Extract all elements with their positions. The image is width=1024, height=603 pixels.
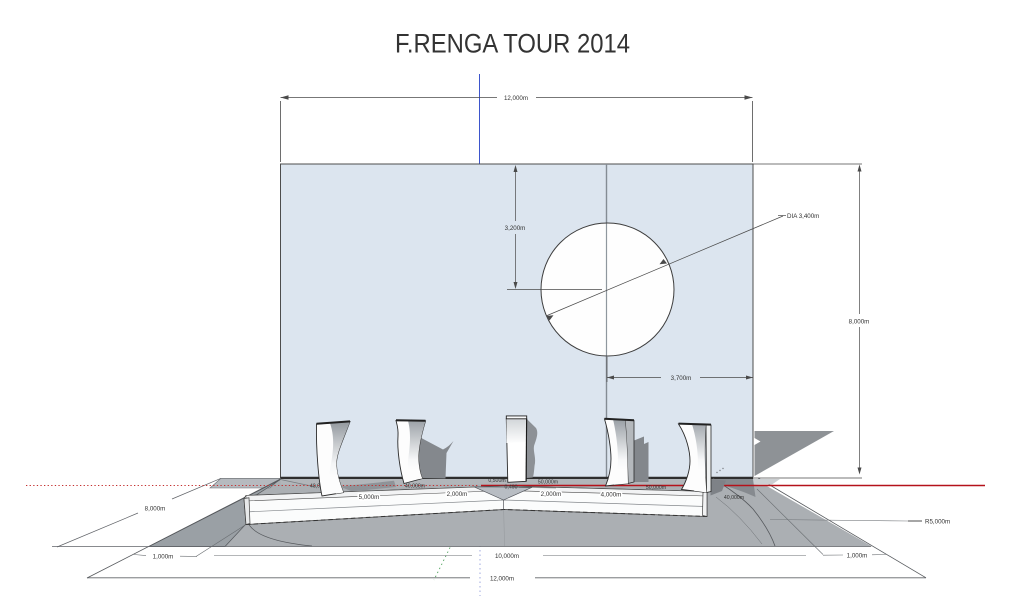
svg-text:12,000m: 12,000m (504, 95, 528, 102)
svg-text:F.RENGA TOUR 2014: F.RENGA TOUR 2014 (395, 29, 630, 59)
svg-text:0,490: 0,490 (505, 485, 518, 491)
svg-text:50,000m: 50,000m (646, 485, 666, 491)
svg-text:8,000m: 8,000m (145, 506, 166, 513)
svg-text:2,000m: 2,000m (541, 491, 562, 498)
svg-text:R5,000m: R5,000m (925, 519, 950, 526)
svg-text:8,000m: 8,000m (849, 319, 870, 326)
svg-text:1,000m: 1,000m (847, 553, 868, 560)
svg-text:40,000m: 40,000m (405, 484, 425, 490)
svg-text:3,700m: 3,700m (671, 375, 692, 382)
svg-text:2,000m: 2,000m (447, 491, 468, 498)
svg-text:10,000m: 10,000m (495, 553, 519, 560)
svg-text:DIA 3,400m: DIA 3,400m (787, 213, 819, 220)
svg-text:40,000m: 40,000m (724, 495, 744, 501)
svg-text:0,500m: 0,500m (488, 478, 505, 484)
svg-text:5,000m: 5,000m (359, 494, 380, 501)
svg-text:3,200m: 3,200m (505, 225, 526, 232)
svg-text:12,000m: 12,000m (490, 576, 514, 583)
svg-text:50,000m: 50,000m (538, 480, 558, 486)
svg-text:1,000m: 1,000m (153, 554, 174, 561)
svg-text:4,000m: 4,000m (601, 492, 622, 499)
